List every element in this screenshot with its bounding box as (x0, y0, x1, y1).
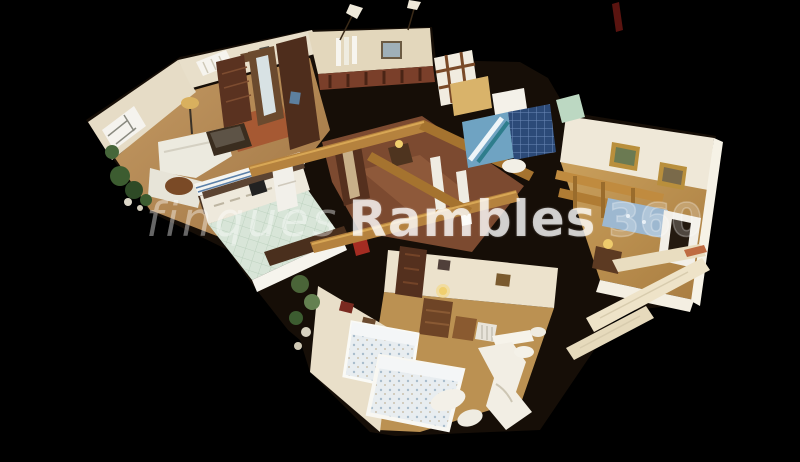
bedroom-chair (452, 316, 477, 341)
dark-wood-door (395, 246, 427, 298)
leather-pouf (165, 177, 193, 195)
tower-window (382, 42, 401, 58)
wall-picture (437, 259, 450, 270)
framed-painting (657, 162, 687, 190)
tower-wall (308, 28, 433, 74)
wall-picture (495, 273, 510, 287)
cabinet-picture (289, 91, 301, 104)
dollhouse-canvas[interactable] (0, 0, 800, 462)
tower-curtains (336, 36, 357, 66)
framed-painting (609, 142, 640, 171)
bedding-dot (626, 214, 630, 218)
blue-tile-shower-wall (462, 112, 514, 168)
virtual-tour-stage: finques Rambles 360 (0, 0, 800, 462)
dark-blue-tile-wall (508, 104, 556, 160)
bedding-dot (642, 220, 646, 224)
sink-blob (514, 346, 534, 358)
bath-fixture-white (502, 159, 526, 173)
sink-blob (530, 327, 546, 337)
